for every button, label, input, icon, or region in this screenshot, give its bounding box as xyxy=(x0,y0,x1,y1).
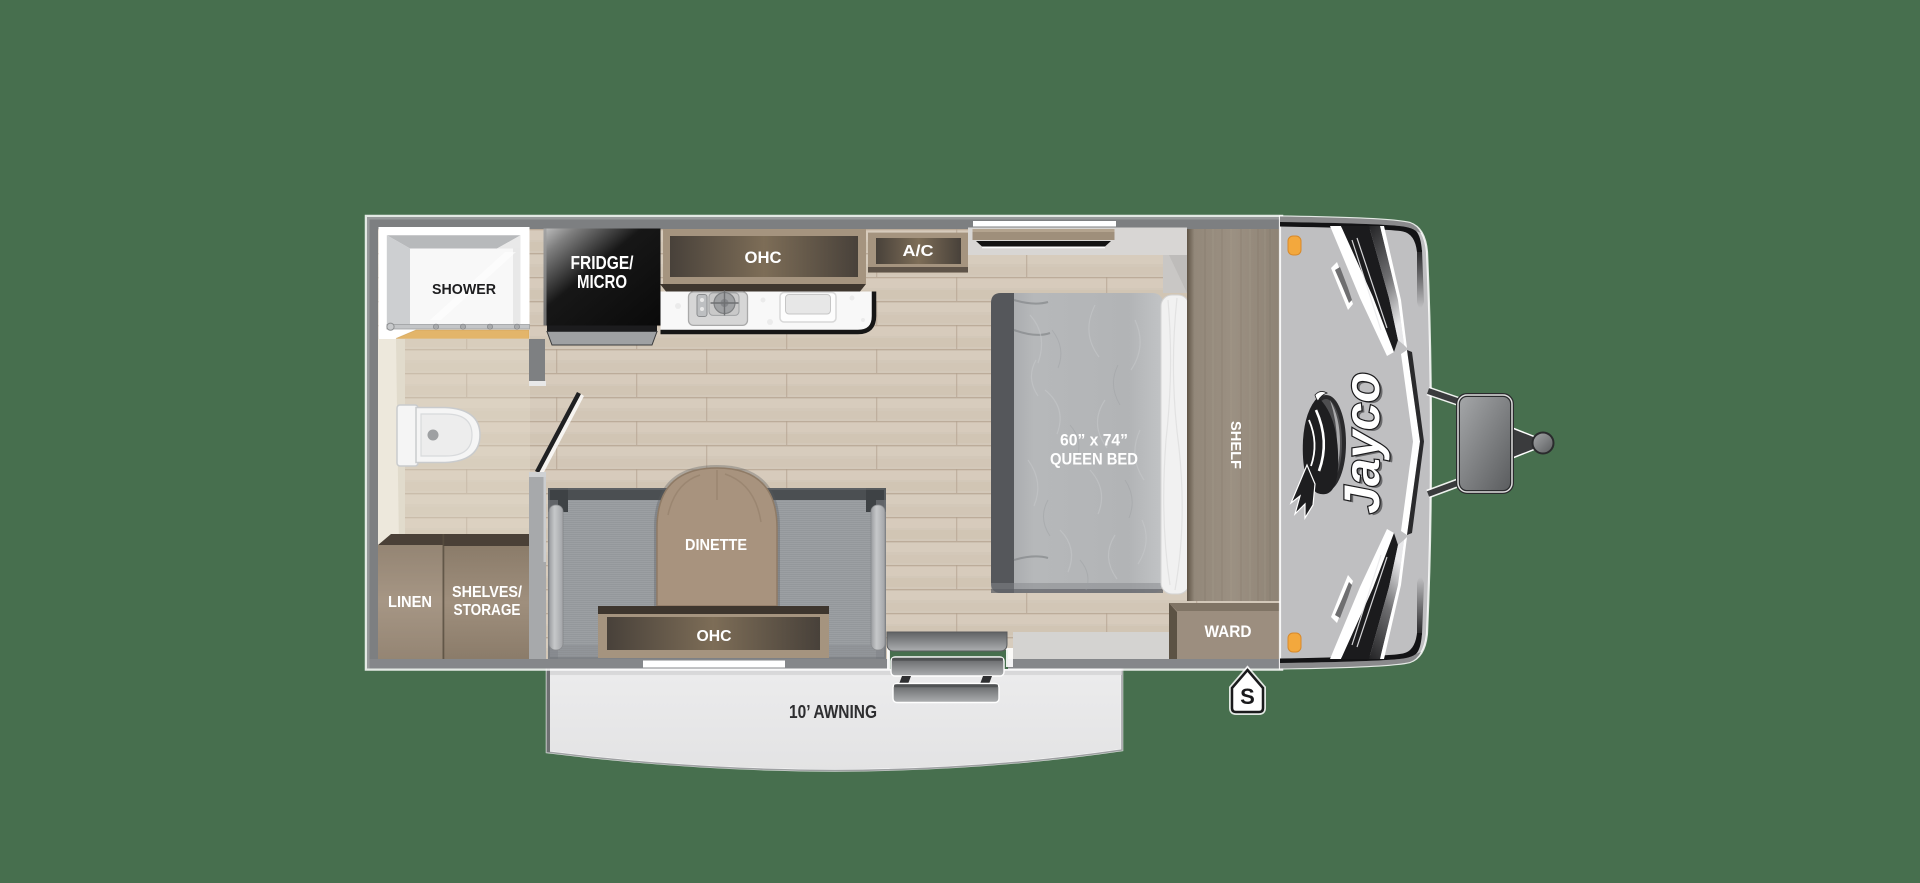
svg-text:WARD: WARD xyxy=(1205,622,1252,641)
svg-text:LINEN: LINEN xyxy=(388,594,432,611)
svg-text:MICRO: MICRO xyxy=(577,272,627,292)
svg-text:DINETTE: DINETTE xyxy=(685,537,747,554)
svg-text:SHELF: SHELF xyxy=(1227,421,1244,469)
svg-text:SHOWER: SHOWER xyxy=(432,281,496,298)
svg-text:10’ AWNING: 10’ AWNING xyxy=(789,702,877,722)
svg-text:STORAGE: STORAGE xyxy=(454,602,521,619)
svg-text:QUEEN BED: QUEEN BED xyxy=(1050,450,1138,469)
svg-text:A/C: A/C xyxy=(903,243,934,260)
svg-text:OHC: OHC xyxy=(697,628,732,645)
svg-text:Jayco: Jayco xyxy=(1334,372,1390,514)
svg-text:S: S xyxy=(1240,684,1255,709)
svg-text:FRIDGE/: FRIDGE/ xyxy=(571,253,634,273)
svg-text:OHC: OHC xyxy=(745,248,782,267)
svg-text:SHELVES/: SHELVES/ xyxy=(452,584,522,601)
svg-text:60” x 74”: 60” x 74” xyxy=(1060,431,1128,450)
